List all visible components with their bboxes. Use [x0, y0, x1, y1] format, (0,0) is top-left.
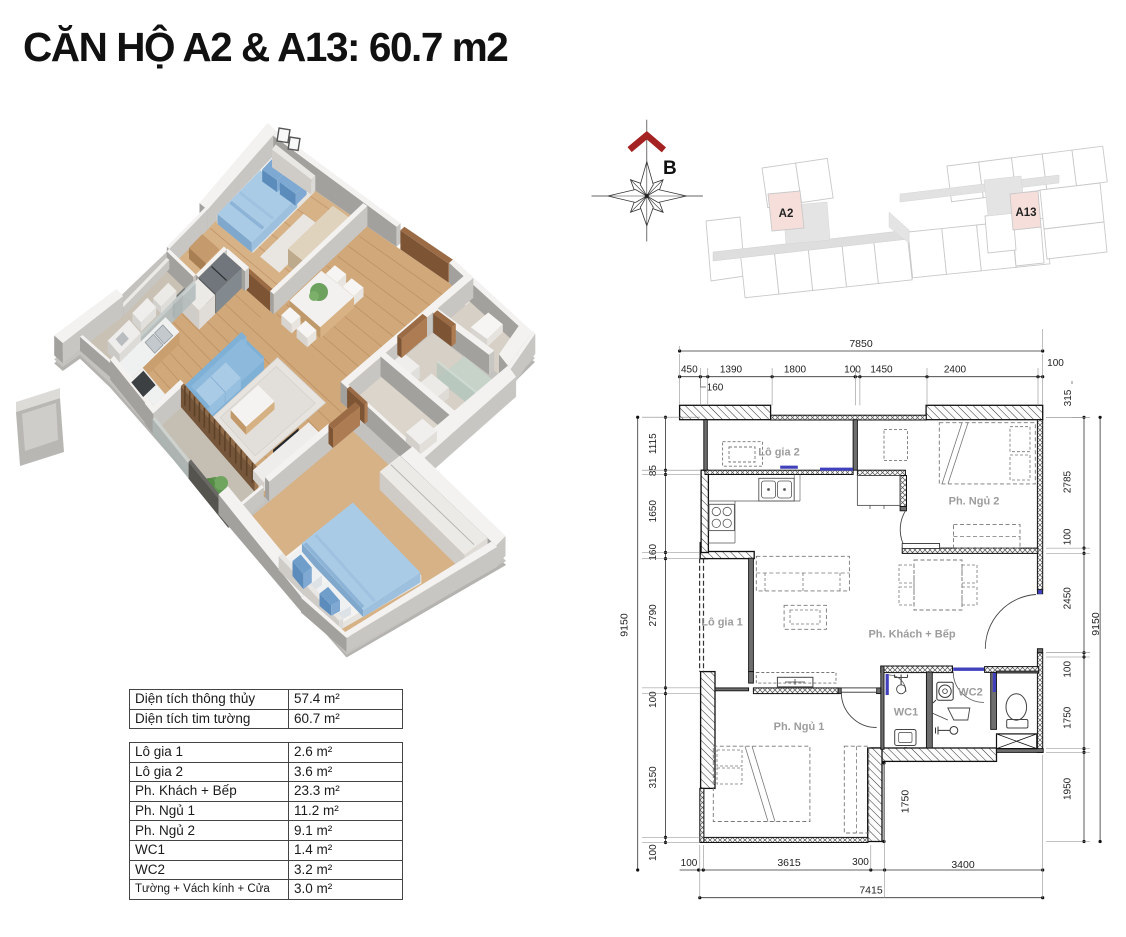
svg-text:Lô gia 1: Lô gia 1: [701, 617, 743, 629]
svg-text:Lô gia 2: Lô gia 2: [758, 447, 800, 459]
svg-text:1450: 1450: [870, 365, 893, 376]
svg-text:1650: 1650: [648, 500, 659, 523]
svg-text:1950: 1950: [1063, 777, 1074, 800]
svg-text:1115: 1115: [648, 433, 659, 454]
svg-text:100: 100: [844, 365, 861, 376]
svg-text:1750: 1750: [1063, 706, 1074, 729]
svg-text:9150: 9150: [1090, 612, 1102, 636]
svg-text:160: 160: [648, 544, 659, 561]
svg-text:WC1: WC1: [894, 707, 918, 719]
svg-text:100: 100: [681, 858, 698, 869]
svg-text:WC2: WC2: [958, 687, 982, 699]
svg-text:Ph. Khách + Bếp: Ph. Khách + Bếp: [868, 629, 955, 641]
svg-text:300: 300: [852, 857, 869, 868]
svg-text:100: 100: [1063, 528, 1074, 545]
svg-text:A13: A13: [1015, 207, 1036, 219]
svg-text:1800: 1800: [784, 365, 807, 376]
svg-text:315: 315: [1063, 389, 1074, 406]
svg-text:7415: 7415: [859, 885, 883, 897]
svg-text:1390: 1390: [720, 365, 743, 376]
svg-text:Ph. Ngủ 1: Ph. Ngủ 1: [774, 721, 825, 733]
svg-text:2785: 2785: [1063, 470, 1074, 493]
svg-text:B: B: [663, 158, 677, 179]
svg-text:450: 450: [681, 365, 698, 376]
svg-text:160: 160: [707, 383, 724, 394]
svg-text:2450: 2450: [1063, 587, 1074, 610]
svg-text:3615: 3615: [777, 857, 801, 869]
svg-text:3150: 3150: [648, 766, 659, 789]
svg-text:2400: 2400: [944, 365, 967, 376]
svg-text:A2: A2: [779, 208, 794, 220]
svg-text:2790: 2790: [648, 604, 659, 627]
svg-text:100: 100: [1063, 661, 1074, 678]
svg-text:Ph. Ngủ 2: Ph. Ngủ 2: [949, 496, 1000, 508]
svg-text:7850: 7850: [849, 338, 873, 350]
svg-text:9150: 9150: [619, 613, 631, 637]
svg-text:100: 100: [648, 844, 659, 861]
svg-text:100: 100: [1047, 358, 1064, 369]
svg-text:1750: 1750: [900, 790, 912, 814]
svg-text:3400: 3400: [951, 859, 975, 871]
